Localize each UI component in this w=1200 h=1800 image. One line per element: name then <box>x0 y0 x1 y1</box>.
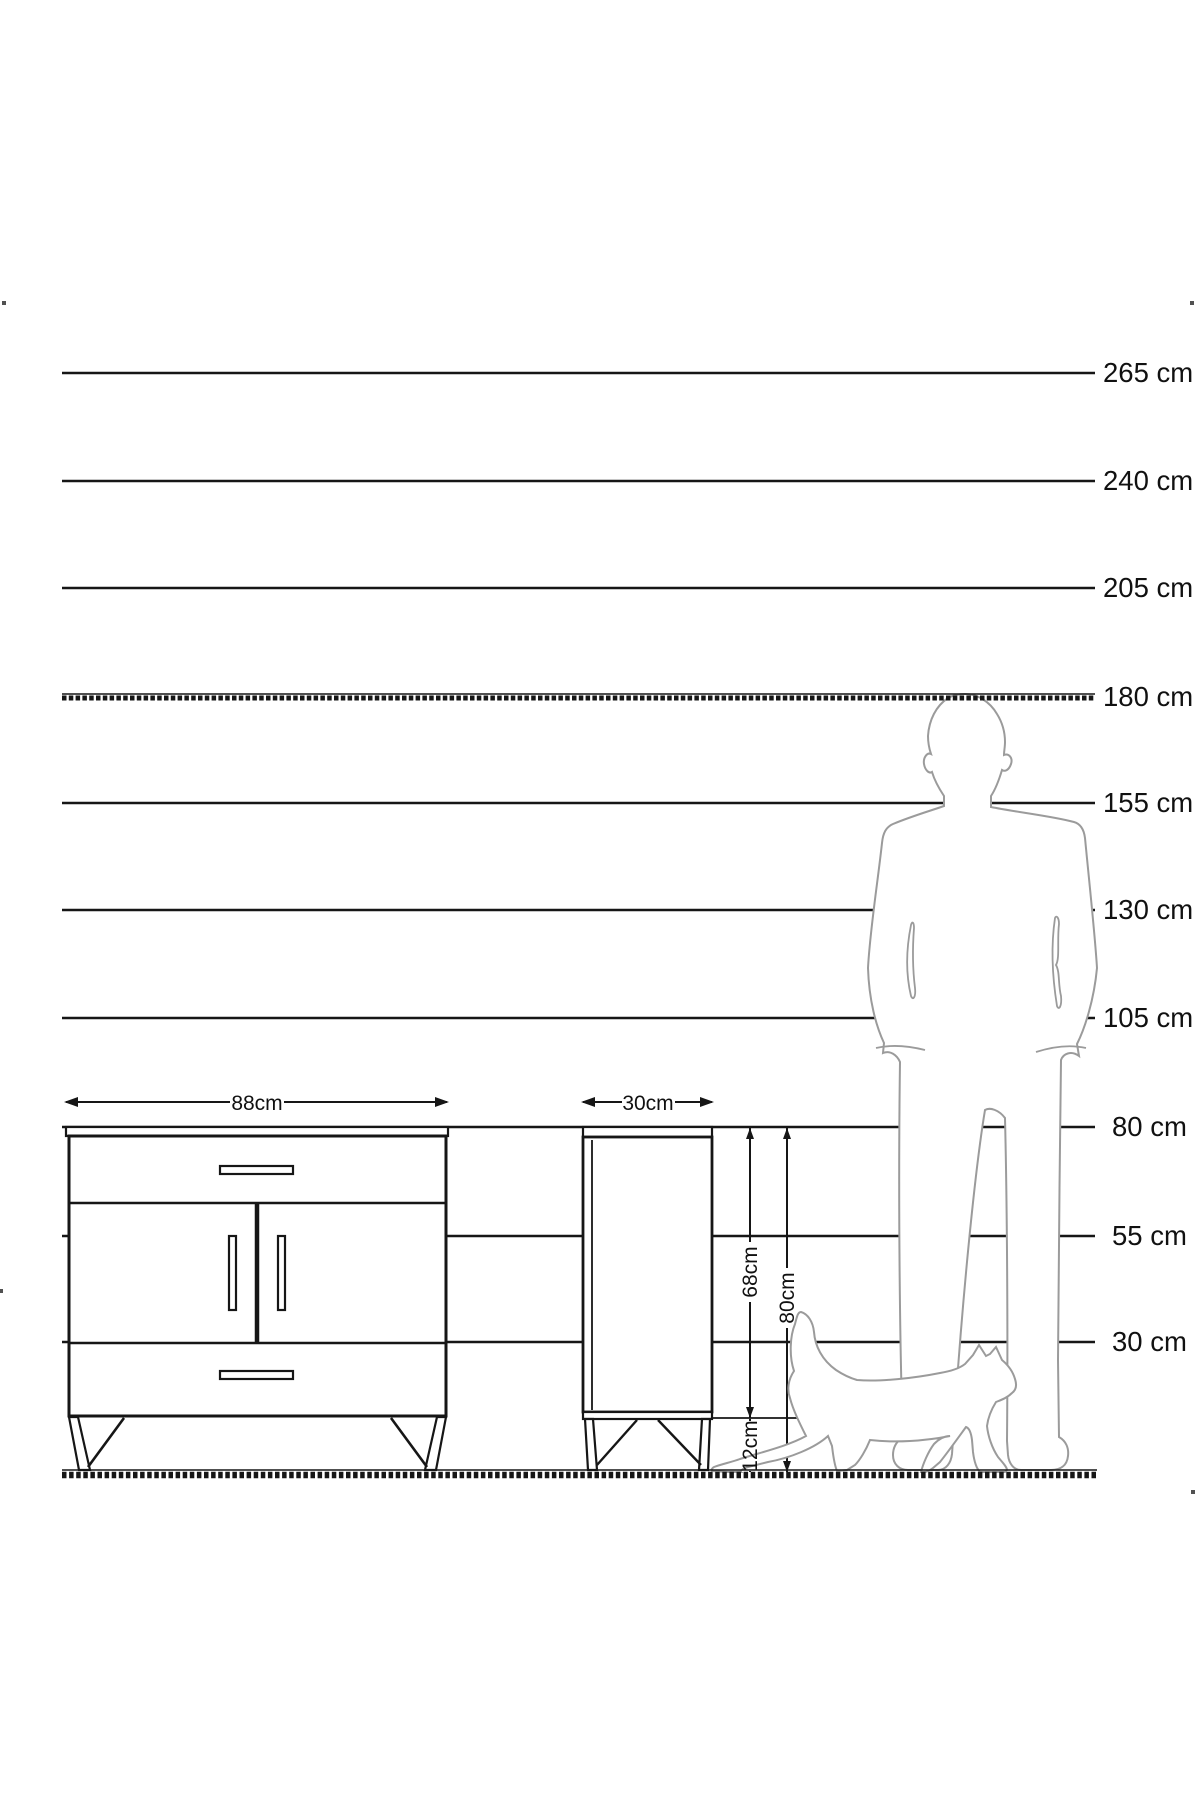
bottom-drawer-handle <box>220 1371 293 1379</box>
dim-arrow-left <box>64 1097 78 1107</box>
ruler-label-105: 105 cm <box>1103 1002 1193 1033</box>
mark-mid-left <box>0 1289 3 1293</box>
front-cabinet-legs <box>69 1417 446 1470</box>
front-cabinet-width-label: 88cm <box>231 1092 282 1115</box>
mark-bottom-right <box>1191 1490 1195 1494</box>
dim-arrow-right <box>700 1097 714 1107</box>
total-height-label: 80cm <box>776 1272 799 1323</box>
reference-line-180 <box>62 694 1095 698</box>
ruler-label-55: 55 cm <box>1112 1220 1187 1251</box>
ruler-label-205: 205 cm <box>1103 572 1193 603</box>
ground-line <box>62 1470 1097 1475</box>
size-comparison-diagram: 265 cm 240 cm 205 cm 180 cm 155 cm 130 c… <box>0 0 1200 1800</box>
dim-arrow-right <box>435 1097 449 1107</box>
side-cabinet-width-label: 30cm <box>622 1092 673 1115</box>
side-cabinet: 30cm <box>581 1092 714 1470</box>
leg-height-label: 12cm <box>739 1420 762 1471</box>
ruler-label-240: 240 cm <box>1103 465 1193 496</box>
side-cabinet-legs <box>585 1419 710 1470</box>
diagram-canvas: 265 cm 240 cm 205 cm 180 cm 155 cm 130 c… <box>0 0 1200 1800</box>
dim-arrow-left <box>581 1097 595 1107</box>
side-cabinet-body <box>583 1137 712 1412</box>
dim-arrow-up <box>783 1128 791 1139</box>
ruler-label-180: 180 cm <box>1103 681 1193 712</box>
front-cabinet: 88cm <box>64 1092 449 1470</box>
dim-arrow-down <box>746 1407 754 1418</box>
ruler-label-130: 130 cm <box>1103 894 1193 925</box>
left-door-handle <box>229 1236 236 1310</box>
ruler-label-265: 265 cm <box>1103 357 1193 388</box>
side-cabinet-top <box>583 1127 712 1137</box>
mark-top-right <box>1190 301 1194 305</box>
height-ruler-labels: 265 cm 240 cm 205 cm 180 cm 155 cm 130 c… <box>1103 357 1193 1357</box>
ruler-label-155: 155 cm <box>1103 787 1193 818</box>
side-cabinet-bottom <box>583 1412 712 1419</box>
dim-arrow-up <box>746 1128 754 1139</box>
ruler-label-80: 80 cm <box>1112 1111 1187 1142</box>
ruler-label-30: 30 cm <box>1112 1326 1187 1357</box>
right-door-handle <box>278 1236 285 1310</box>
body-height-label: 68cm <box>739 1246 762 1297</box>
mark-top-left <box>2 301 6 305</box>
top-drawer-handle <box>220 1166 293 1174</box>
